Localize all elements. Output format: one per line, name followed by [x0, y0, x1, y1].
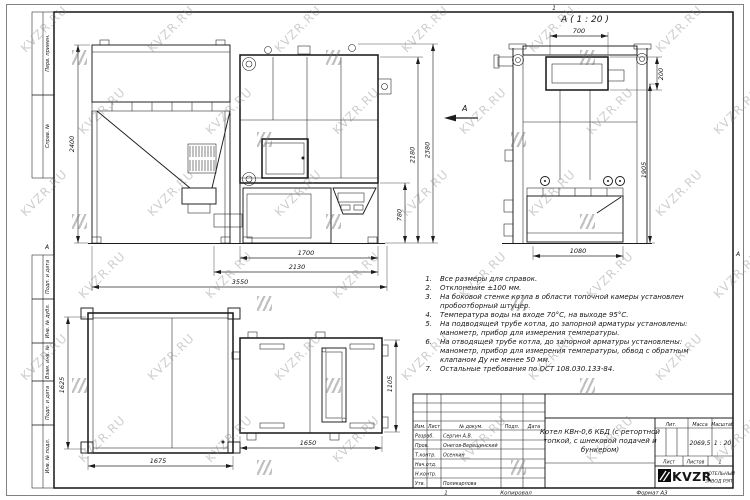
row-name: Осенкин: [443, 453, 465, 459]
mass-value: 2069,5: [690, 440, 711, 447]
furnace-door: [262, 139, 308, 178]
drawing-sheet: Перв. примен. Справ. № Подп. и дата Инв.…: [0, 0, 750, 500]
section-upper-box: [546, 57, 608, 90]
row-name: Сергин А.В.: [443, 434, 472, 440]
dim-1675: 1675: [150, 457, 167, 465]
hopper-funnel-left: [97, 111, 190, 188]
col-podp: Подп.: [505, 424, 520, 430]
row-label: Утв.: [415, 481, 425, 487]
dim-1700: 1700: [298, 249, 315, 257]
feeder-box: [182, 188, 216, 204]
fold-mark-bottom: 1: [444, 491, 448, 497]
feeder-tube: [214, 214, 242, 227]
zone-mark-right: А: [735, 251, 740, 258]
screw-feeder-grate: [188, 144, 216, 173]
view-arrow-A: А: [444, 104, 478, 121]
dim-700: 700: [573, 27, 585, 35]
format-label: Формат А3: [636, 491, 668, 497]
col-data: Дата: [527, 424, 540, 430]
row-name: Поликарпова: [443, 481, 477, 487]
section-view-label: А ( 1 : 20 ): [560, 15, 609, 25]
note-line: На боковой стенке котла в области топочн…: [440, 293, 684, 301]
row-label: Нач.отд.: [415, 462, 436, 468]
col-izm: Изм.: [414, 424, 425, 430]
lit-header: Лит.: [664, 422, 676, 428]
view-arrow-label: А: [461, 104, 467, 113]
zone-mark-left: А: [44, 244, 49, 251]
drawing-canvas: Перв. примен. Справ. № Подп. и дата Инв.…: [0, 0, 750, 500]
note-number: 4.: [425, 311, 432, 319]
margin-label: Взам. инв. №: [45, 345, 51, 379]
top-view-boiler: 1650 1105: [232, 332, 400, 452]
note-line: Отклонение ±100 мм.: [440, 284, 521, 292]
dim-3550: 3550: [232, 278, 249, 286]
note-number: 3.: [425, 293, 432, 301]
dim-1650: 1650: [300, 439, 317, 447]
doc-title-line3: бункером): [581, 446, 620, 454]
note-line: На подводящей трубе котла, до запорной а…: [440, 320, 688, 328]
doc-title-line2: топкой, с шнековой подачей и: [543, 437, 657, 445]
dim-780: 780: [396, 209, 404, 221]
company-line1: КОТЕЛЬНЫЙ: [705, 470, 735, 477]
dim-200: 200: [657, 68, 665, 80]
sheet-label: Лист: [662, 460, 675, 466]
margin-boxes: Перв. примен. Справ. № Подп. и дата Инв.…: [32, 12, 54, 488]
front-view-boiler: [238, 45, 391, 244]
margin-label: Подп. и дата: [45, 386, 51, 420]
margin-label: Инв. № подл.: [45, 439, 51, 474]
company-logo: KVZR КОТЕЛЬНЫЙ ЗАВОД РЭП: [658, 469, 735, 485]
sheets-label: Листов: [686, 460, 705, 466]
mass-header: Масса: [692, 422, 707, 428]
fold-mark-top: 1: [552, 5, 556, 12]
dim-1080: 1080: [570, 247, 587, 255]
sheets-value: 1: [718, 460, 721, 466]
margin-label: Справ. №: [45, 124, 51, 148]
note-number: 7.: [425, 365, 432, 373]
margin-label: Перв. примен.: [45, 34, 51, 72]
note-line: Остальные требования по ОСТ 108.030.133-…: [440, 365, 615, 373]
top-hatch: [322, 348, 346, 422]
front-view-dimensions: 2400 2380 2180 780 1700 2130 3550: [68, 44, 438, 291]
note-line: манометр, прибор для измерения температу…: [440, 329, 619, 337]
section-lower-box: [527, 196, 623, 242]
col-doc: № докум.: [458, 424, 483, 430]
dim-1905: 1905: [640, 162, 648, 179]
note-line: Все размеры для справок.: [440, 275, 537, 283]
dim-1105: 1105: [386, 376, 394, 393]
row-name: Онегов-Верещинский: [443, 443, 498, 449]
doc-title-line1: Котел КВн-0,6 КБД (с ретортной: [540, 428, 660, 436]
note-number: 5.: [425, 320, 432, 328]
hopper-funnel-right: [212, 111, 230, 188]
company-line2: ЗАВОД РЭП: [705, 479, 733, 485]
row-label: Разраб.: [415, 434, 434, 440]
dim-2400: 2400: [68, 136, 76, 153]
section-view: А ( 1 : 20 ) 700 200 1905: [494, 15, 665, 260]
dim-2130: 2130: [289, 263, 306, 271]
technical-notes: 1.Все размеры для справок. 2.Отклонение …: [425, 275, 689, 373]
col-list: Лист: [427, 424, 440, 430]
dim-1625: 1625: [58, 377, 66, 394]
front-view-bunker: [88, 40, 242, 244]
row-label: Т.контр.: [415, 453, 436, 459]
copied-label: Копировал: [500, 491, 532, 497]
row-label: Н.контр.: [415, 472, 436, 478]
note-number: 2.: [425, 284, 432, 292]
note-line: На отводящей трубе котла, до запорной ар…: [440, 338, 682, 346]
margin-label: Подп. и дата: [45, 260, 51, 294]
dim-2180: 2180: [409, 147, 417, 164]
note-line: пробоотборный штуцер.: [440, 302, 531, 310]
title-block: Изм. Лист № докум. Подп. Дата Разраб. Се…: [413, 394, 735, 488]
side-bracket: [378, 79, 391, 94]
note-line: манометр, прибор для измерения температу…: [440, 347, 689, 355]
scale-value: 1 : 20: [714, 440, 731, 447]
note-number: 1.: [425, 275, 432, 283]
ash-door-box: [243, 188, 331, 243]
row-label: Пров.: [415, 443, 429, 449]
note-number: 6.: [425, 338, 432, 346]
sheet-frame: Перв. примен. Справ. № Подп. и дата Инв.…: [7, 5, 744, 496]
note-line: Температура воды на входе 70°С, на выход…: [440, 311, 628, 319]
scale-header: Масштаб: [711, 422, 734, 428]
note-line: клапаном Ду не менее 50 мм.: [440, 356, 550, 364]
top-view-bunker: 1625 1675: [58, 308, 240, 470]
dim-2380: 2380: [424, 142, 432, 159]
margin-label: Инв. № дубл.: [45, 304, 51, 338]
